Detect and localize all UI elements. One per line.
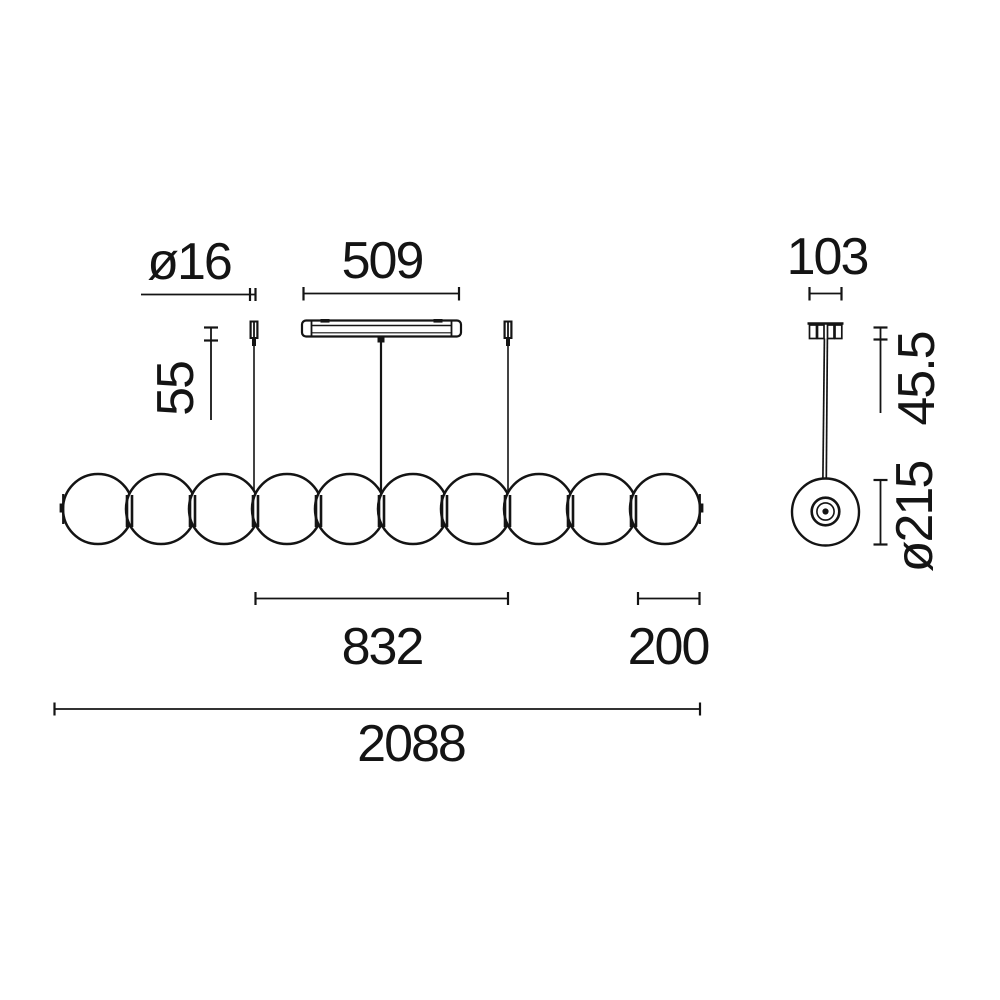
dim-label-suspension-span: 832 — [342, 621, 423, 673]
cable-gripper-right — [504, 321, 513, 347]
stem-side — [823, 339, 828, 479]
sphere — [441, 474, 511, 544]
dim-label-overall-length: 2088 — [357, 718, 465, 770]
sphere-side — [792, 479, 859, 546]
dim-line-canopy-width — [810, 287, 842, 301]
dim-line-stem-drop — [874, 327, 888, 414]
dim-label-cable-gripper-drop: 55 — [150, 362, 202, 416]
dim-label-sphere-diameter: ø215 — [889, 462, 941, 573]
row-end-cap-right — [699, 494, 703, 524]
sphere — [252, 474, 322, 544]
cable-gripper-left — [250, 321, 259, 347]
sphere — [126, 474, 196, 544]
canopy-mount-screw-right — [434, 319, 443, 323]
dim-label-end-module: 200 — [628, 621, 709, 673]
dim-label-stem-drop: 45.5 — [891, 332, 943, 425]
dim-line-cable-gripper-drop — [204, 327, 218, 421]
sphere — [567, 474, 637, 544]
dim-label-canopy-width: 103 — [787, 231, 868, 283]
dim-label-canopy-length: 509 — [342, 235, 423, 287]
dim-line-end-module — [638, 592, 700, 605]
sphere — [504, 474, 574, 544]
pendant-dimension-drawing — [0, 0, 1000, 1000]
row-end-cap-left — [60, 494, 64, 524]
sphere — [63, 474, 133, 544]
sphere — [630, 474, 700, 544]
canopy-side — [808, 324, 844, 339]
dim-line-overall-length — [55, 703, 701, 716]
sphere — [189, 474, 259, 544]
sphere — [378, 474, 448, 544]
dim-label-cable-diameter: ø16 — [147, 236, 231, 288]
sphere-end-center-dot — [822, 508, 828, 514]
dim-line-suspension-span — [256, 592, 509, 605]
sphere — [315, 474, 385, 544]
canopy-mount-screw-left — [321, 319, 330, 323]
technical-drawing-canvas: ø16 509 55 832 200 2088 103 45.5 ø215 — [0, 0, 1000, 1000]
